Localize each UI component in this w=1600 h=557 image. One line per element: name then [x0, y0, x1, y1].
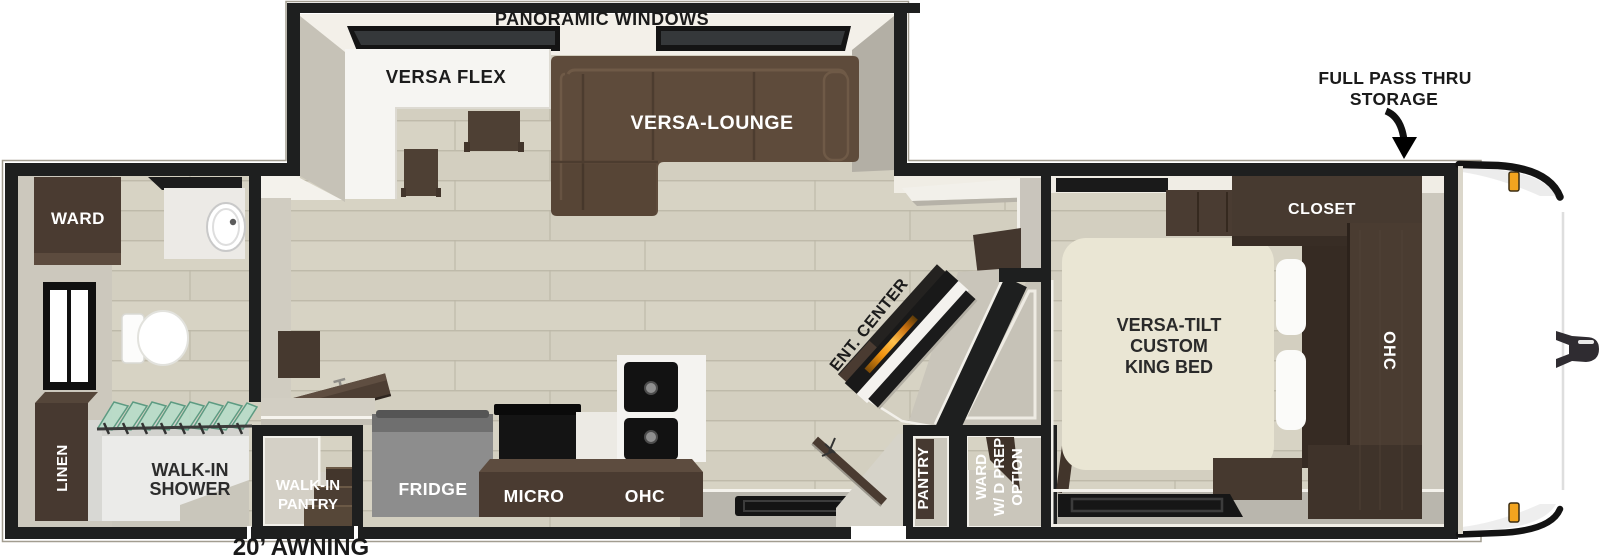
svg-text:WARD: WARD [51, 209, 105, 228]
svg-text:W/ D PREP: W/ D PREP [991, 438, 1008, 516]
svg-text:WALK-IN: WALK-IN [276, 477, 340, 494]
svg-text:OHC: OHC [625, 486, 665, 506]
svg-text:SHOWER: SHOWER [150, 479, 231, 499]
svg-text:20’ AWNING: 20’ AWNING [233, 534, 369, 557]
svg-text:PANTRY: PANTRY [278, 496, 338, 513]
svg-text:PANTRY: PANTRY [915, 447, 932, 510]
svg-text:FULL PASS THRU: FULL PASS THRU [1318, 68, 1471, 88]
svg-text:WARD: WARD [973, 454, 990, 500]
svg-text:CLOSET: CLOSET [1288, 201, 1356, 218]
svg-text:FRIDGE: FRIDGE [398, 479, 467, 499]
svg-text:LINEN: LINEN [54, 444, 71, 492]
svg-text:OHC: OHC [1380, 331, 1398, 371]
svg-text:VERSA FLEX: VERSA FLEX [386, 66, 507, 87]
svg-text:PANORAMIC WINDOWS: PANORAMIC WINDOWS [495, 9, 709, 29]
svg-text:MICRO: MICRO [504, 486, 565, 506]
svg-text:OPTION: OPTION [1009, 448, 1026, 506]
svg-text:WALK-IN: WALK-IN [152, 460, 229, 480]
svg-text:CUSTOM: CUSTOM [1130, 336, 1208, 356]
svg-text:STORAGE: STORAGE [1350, 89, 1438, 109]
svg-text:KING BED: KING BED [1125, 357, 1213, 377]
svg-text:VERSA-TILT: VERSA-TILT [1117, 315, 1222, 335]
svg-text:VERSA-LOUNGE: VERSA-LOUNGE [630, 112, 793, 134]
